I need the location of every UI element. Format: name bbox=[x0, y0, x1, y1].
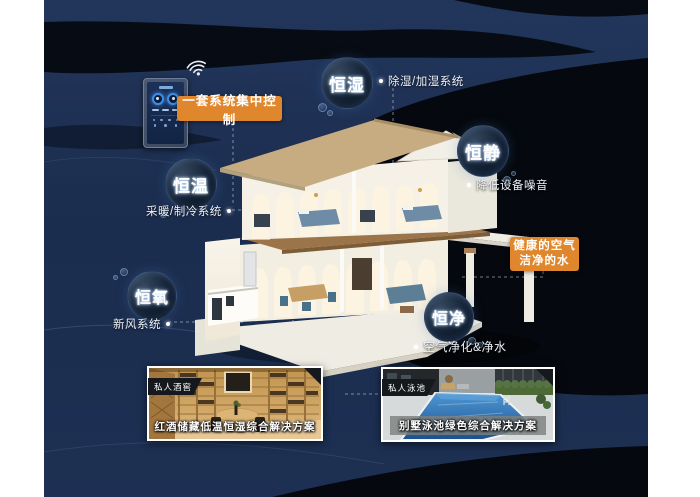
bubble-label: 恒湿 bbox=[329, 71, 365, 96]
label-noise-reduction: 降低设备噪音 bbox=[467, 177, 548, 193]
mini-bubble bbox=[120, 268, 128, 276]
healthy-air-callout: 健康的空气 洁净的水 bbox=[510, 237, 579, 271]
corner-fold bbox=[304, 368, 321, 385]
central-control-callout: 一套系统集中控制 bbox=[177, 96, 282, 121]
bubble-label: 恒净 bbox=[432, 305, 466, 329]
label-text: 采暖/制冷系统 bbox=[146, 203, 222, 219]
healthy-air-line1: 健康的空气 bbox=[513, 239, 576, 254]
healthy-air-line2: 洁净的水 bbox=[520, 254, 570, 269]
thermostat-dial-icon bbox=[152, 93, 164, 105]
pool-caption-text: 别墅泳池绿色综合解决方案 bbox=[390, 416, 546, 435]
label-fresh-air-system: 新风系统 bbox=[113, 316, 170, 332]
bubble-constant-quiet: 恒静 bbox=[457, 125, 509, 177]
bubble-constant-oxygen: 恒氧 bbox=[127, 271, 177, 321]
mini-bubble bbox=[511, 171, 516, 176]
pool-caption: 别墅泳池绿色综合解决方案 bbox=[383, 416, 553, 435]
pool-photo: 私人泳池 别墅泳池绿色综合解决方案 bbox=[381, 367, 555, 442]
bullet-dot bbox=[227, 209, 231, 213]
label-heating-cooling-system: 采暖/制冷系统 bbox=[146, 203, 231, 219]
bullet-dot bbox=[414, 345, 418, 349]
label-text: 降低设备噪音 bbox=[476, 177, 548, 193]
wine-cellar-caption: 红酒储藏低温恒湿综合解决方案 bbox=[149, 419, 321, 434]
bubble-constant-humidity: 恒湿 bbox=[321, 57, 373, 109]
label-text: 除湿/加湿系统 bbox=[388, 73, 464, 89]
mini-bubble bbox=[113, 275, 118, 280]
mini-bubble bbox=[318, 103, 327, 112]
label-text: 空气净化&净水 bbox=[423, 338, 507, 355]
bullet-dot bbox=[166, 322, 170, 326]
label-air-water-purification: 空气净化&净水 bbox=[414, 338, 507, 355]
bubble-label: 恒静 bbox=[465, 139, 501, 164]
central-control-label: 一套系统集中控制 bbox=[177, 90, 282, 128]
bubble-label: 恒氧 bbox=[135, 284, 169, 308]
pool-badge: 私人泳池 bbox=[382, 379, 436, 396]
wine-cellar-badge: 私人酒窖 bbox=[148, 378, 202, 395]
wine-cellar-photo: 私人酒窖 红酒储藏低温恒湿综合解决方案 bbox=[147, 366, 323, 441]
bullet-dot bbox=[467, 183, 471, 187]
bubble-label: 恒温 bbox=[173, 172, 209, 197]
label-text: 新风系统 bbox=[113, 316, 161, 332]
corner-fold bbox=[536, 369, 553, 386]
mini-bubble bbox=[327, 110, 333, 116]
bullet-dot bbox=[379, 79, 383, 83]
label-dehumidify-system: 除湿/加湿系统 bbox=[379, 73, 464, 89]
bubble-constant-clean: 恒净 bbox=[424, 292, 474, 342]
